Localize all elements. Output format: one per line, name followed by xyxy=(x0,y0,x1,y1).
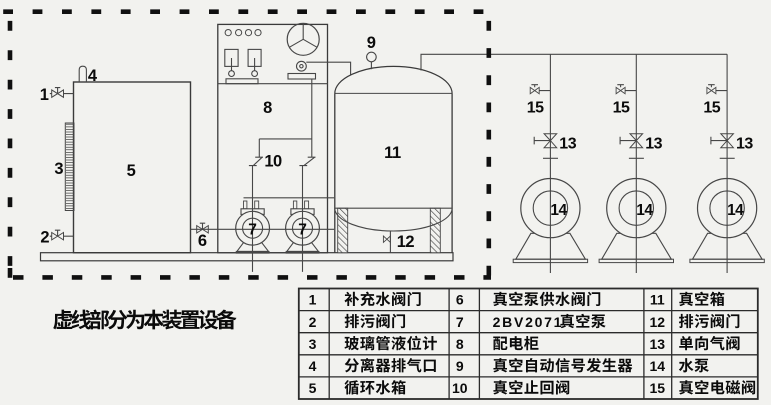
svg-text:14: 14 xyxy=(636,202,653,219)
svg-text:2: 2 xyxy=(309,314,317,330)
svg-text:15: 15 xyxy=(703,99,720,116)
svg-text:15: 15 xyxy=(613,99,630,116)
svg-text:5: 5 xyxy=(127,162,136,180)
svg-text:2: 2 xyxy=(40,228,49,246)
svg-text:7: 7 xyxy=(456,314,464,330)
svg-text:10: 10 xyxy=(452,380,468,396)
svg-text:1: 1 xyxy=(40,86,49,104)
svg-text:2BV2071: 2BV2071 xyxy=(493,314,564,330)
svg-text:11: 11 xyxy=(650,292,665,308)
svg-text:4: 4 xyxy=(309,358,317,374)
svg-text:13: 13 xyxy=(559,136,576,153)
svg-text:15: 15 xyxy=(650,380,666,396)
svg-text:9: 9 xyxy=(367,34,376,52)
svg-text:3: 3 xyxy=(54,160,63,178)
svg-text:3: 3 xyxy=(309,336,317,352)
svg-text:10: 10 xyxy=(264,152,282,170)
svg-text:7: 7 xyxy=(248,222,257,239)
svg-text:14: 14 xyxy=(727,202,744,219)
svg-text:5: 5 xyxy=(309,380,317,396)
svg-text:11: 11 xyxy=(384,144,401,162)
svg-text:14: 14 xyxy=(650,358,666,374)
svg-text:13: 13 xyxy=(650,336,666,352)
svg-text:14: 14 xyxy=(550,202,567,219)
svg-text:15: 15 xyxy=(527,99,544,116)
svg-text:13: 13 xyxy=(645,136,662,153)
svg-text:12: 12 xyxy=(650,314,666,330)
svg-text:9: 9 xyxy=(456,358,464,374)
svg-text:6: 6 xyxy=(456,292,464,308)
svg-text:4: 4 xyxy=(88,67,98,85)
svg-text:1: 1 xyxy=(309,292,317,308)
svg-text:7: 7 xyxy=(298,222,307,239)
svg-text:13: 13 xyxy=(736,136,753,153)
svg-text:6: 6 xyxy=(198,232,207,250)
svg-text:8: 8 xyxy=(263,99,272,117)
svg-text:12: 12 xyxy=(397,233,415,251)
svg-text:8: 8 xyxy=(456,336,464,352)
